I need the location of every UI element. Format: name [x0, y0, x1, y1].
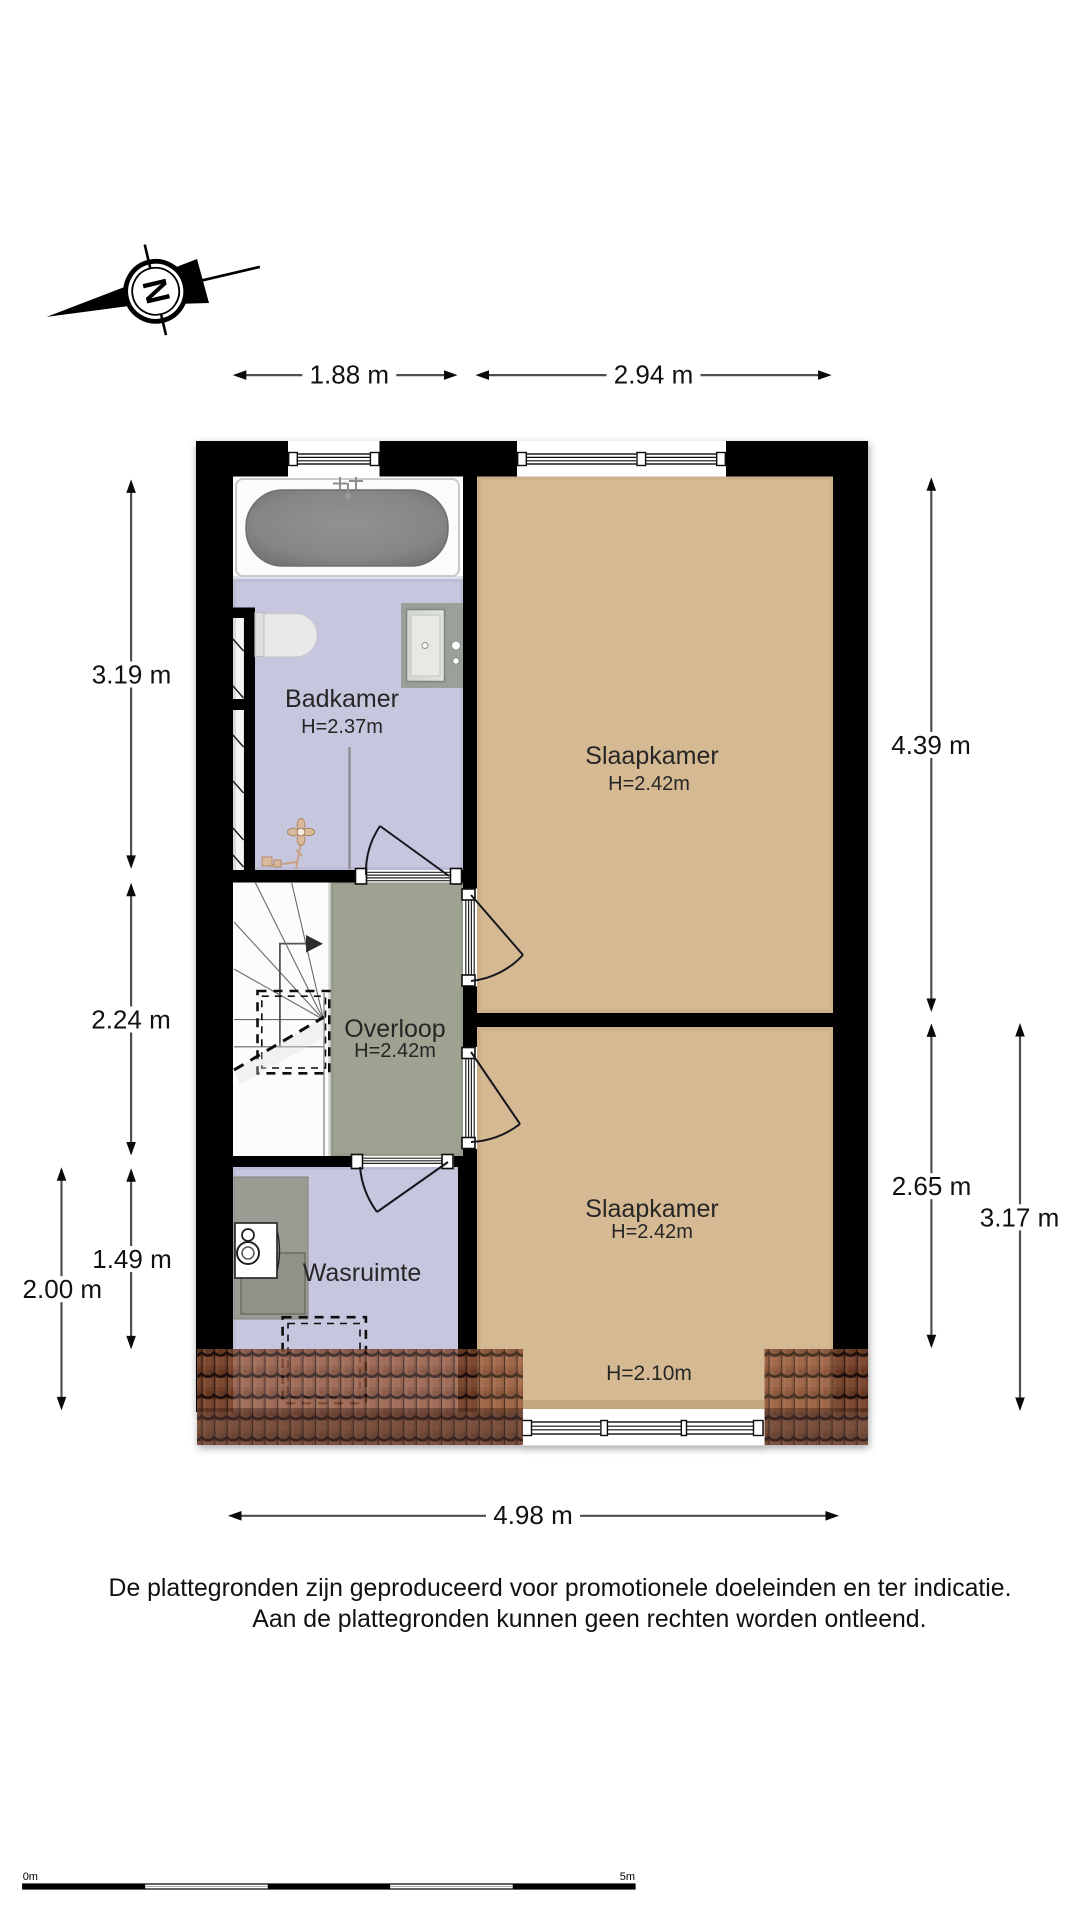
svg-text:Aan de plattegronden kunnen ge: Aan de plattegronden kunnen geen rechten… [252, 1606, 926, 1633]
svg-text:1.88 m: 1.88 m [310, 360, 390, 390]
svg-text:Slaapkamer: Slaapkamer [585, 742, 718, 770]
svg-text:H=2.42m: H=2.42m [608, 773, 690, 795]
svg-text:Overloop: Overloop [344, 1015, 445, 1043]
svg-text:H=2.10m: H=2.10m [606, 1362, 692, 1385]
svg-text:5m: 5m [620, 1871, 635, 1883]
svg-text:Wasruimte: Wasruimte [303, 1259, 422, 1287]
svg-text:4.98 m: 4.98 m [493, 1500, 573, 1530]
svg-text:2.94 m: 2.94 m [614, 360, 694, 390]
svg-text:0m: 0m [23, 1871, 38, 1883]
svg-text:De plattegronden zijn geproduc: De plattegronden zijn geproduceerd voor … [109, 1575, 1012, 1602]
svg-text:2.65 m: 2.65 m [892, 1171, 972, 1201]
svg-text:3.19 m: 3.19 m [92, 660, 172, 690]
svg-text:3.17 m: 3.17 m [980, 1202, 1060, 1232]
svg-text:4.39 m: 4.39 m [891, 730, 971, 760]
svg-text:H=2.42m: H=2.42m [611, 1221, 693, 1243]
svg-text:Slaapkamer: Slaapkamer [585, 1195, 718, 1223]
svg-text:2.00 m: 2.00 m [23, 1274, 103, 1304]
svg-text:Badkamer: Badkamer [285, 685, 399, 713]
svg-text:1.49 m: 1.49 m [92, 1244, 172, 1274]
svg-text:H=2.42m: H=2.42m [354, 1040, 436, 1062]
svg-text:H=2.37m: H=2.37m [301, 716, 383, 738]
svg-text:2.24 m: 2.24 m [91, 1005, 171, 1035]
